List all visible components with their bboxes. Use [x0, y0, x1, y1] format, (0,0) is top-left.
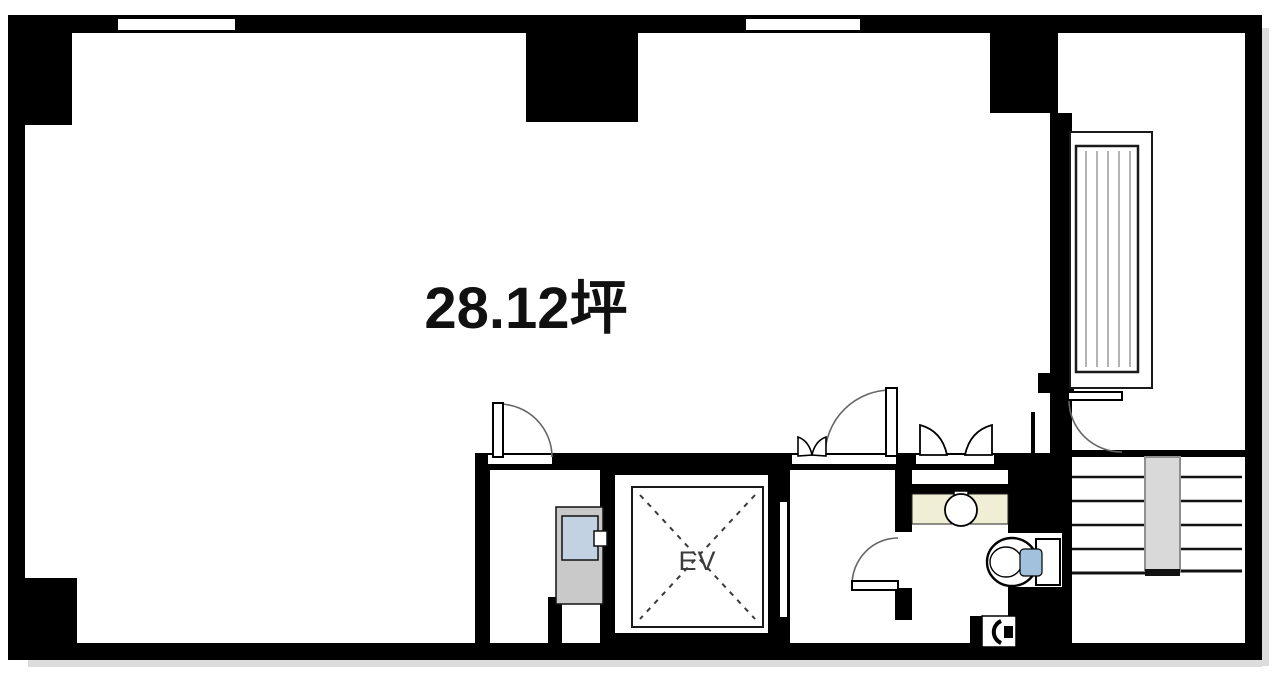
outer-wall-bottom	[8, 643, 1262, 660]
washroom-door-leaf	[852, 581, 898, 590]
stair-door-leaf	[1068, 392, 1122, 400]
elevator-door-slit	[780, 502, 787, 617]
pillar-top-center	[526, 15, 638, 122]
hand-basin-tap	[1004, 626, 1013, 638]
door-frame-post	[1031, 412, 1035, 454]
window-slit	[746, 19, 860, 30]
stair-door-arc	[1069, 400, 1122, 452]
window-slit	[118, 19, 235, 30]
floor-plan: 28.12坪 EV	[0, 0, 1280, 674]
wall-stub	[1038, 373, 1050, 393]
wash-basin	[945, 494, 977, 526]
toilet-wall-upper	[1008, 453, 1062, 533]
storage-door-arc	[499, 404, 552, 457]
stair-rail-cap	[1145, 569, 1180, 576]
hall-door-arc	[825, 390, 891, 456]
utility-panel-window	[562, 516, 598, 560]
toilet-wall-lower	[1008, 587, 1062, 620]
bifold-door-right-leaf	[812, 437, 826, 456]
toilet-seat	[1020, 549, 1042, 576]
pillar-bottom-left	[8, 578, 77, 660]
hall-door-opening	[895, 532, 912, 588]
elevator-label: EV	[659, 543, 736, 579]
stair-top-edge	[1072, 450, 1245, 457]
floor-area-label: 28.12坪	[378, 266, 674, 352]
shadow-bottom	[28, 660, 1262, 667]
door-threshold-washroom	[916, 455, 994, 464]
storage-door-leaf	[493, 403, 503, 457]
outer-wall-right	[1245, 15, 1262, 660]
double-door-left-leaf	[920, 425, 947, 455]
utility-panel-latch	[594, 531, 607, 546]
washroom-slot	[915, 470, 1006, 484]
door-threshold-hall	[792, 455, 896, 464]
stair-rail	[1145, 457, 1180, 571]
hall-door-leaf	[886, 388, 897, 456]
storage-left-wall	[475, 453, 490, 660]
bifold-door-left-leaf	[798, 437, 812, 456]
pillar-top-right	[990, 15, 1058, 113]
pillar-top-left	[8, 15, 72, 125]
shadow-right	[1262, 28, 1269, 666]
washroom-door-arc	[852, 538, 898, 585]
double-door-right-leaf	[965, 425, 992, 455]
